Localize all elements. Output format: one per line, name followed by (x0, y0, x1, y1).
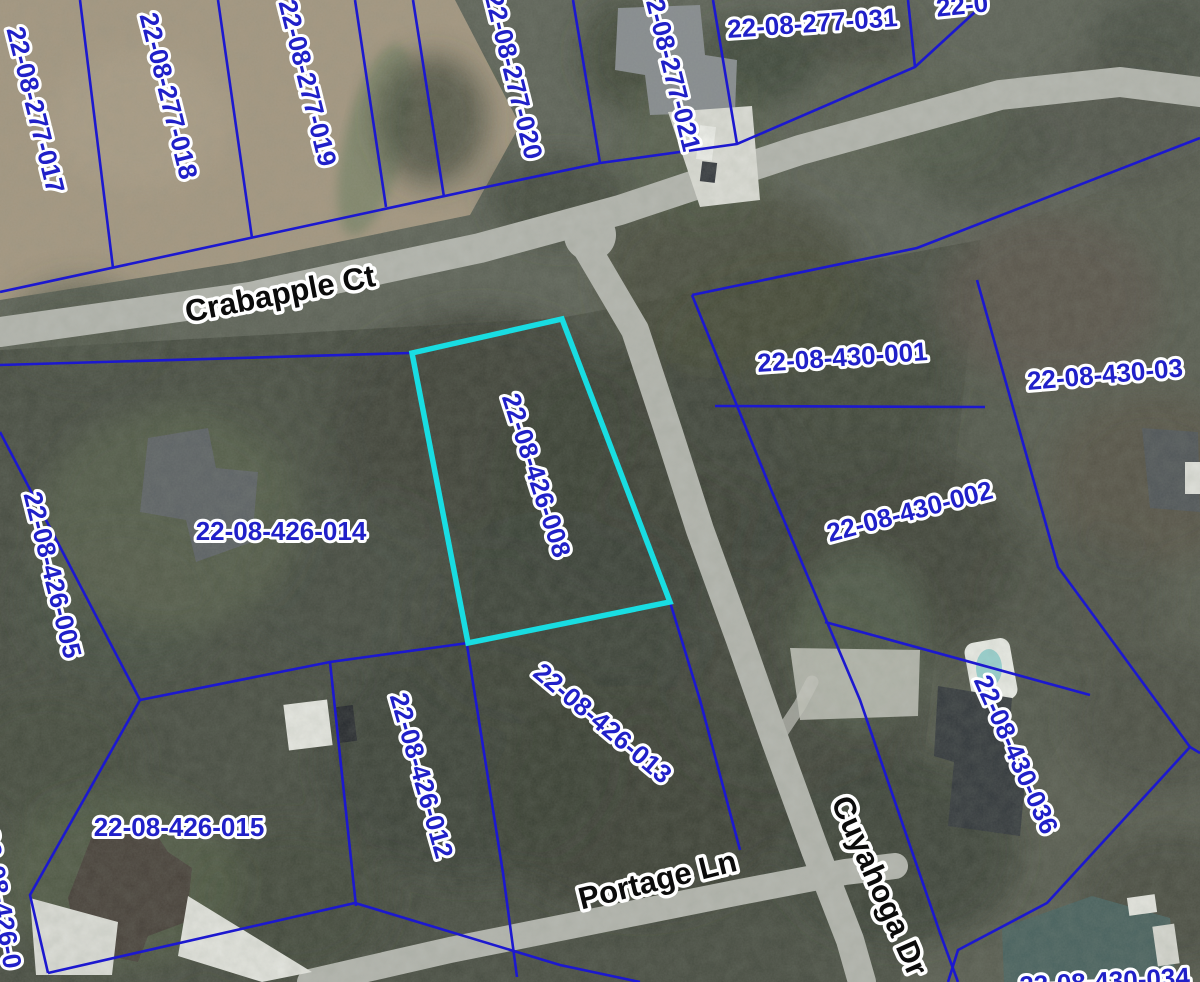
parcel-boundary (715, 406, 985, 407)
parcel-label: 22-08-426-015 (94, 812, 265, 842)
parcel-label: 22-08-426-014 (196, 516, 367, 546)
map-canvas[interactable]: 22-08-277-017 22-08-277-018 22-08-277-01… (0, 0, 1200, 982)
